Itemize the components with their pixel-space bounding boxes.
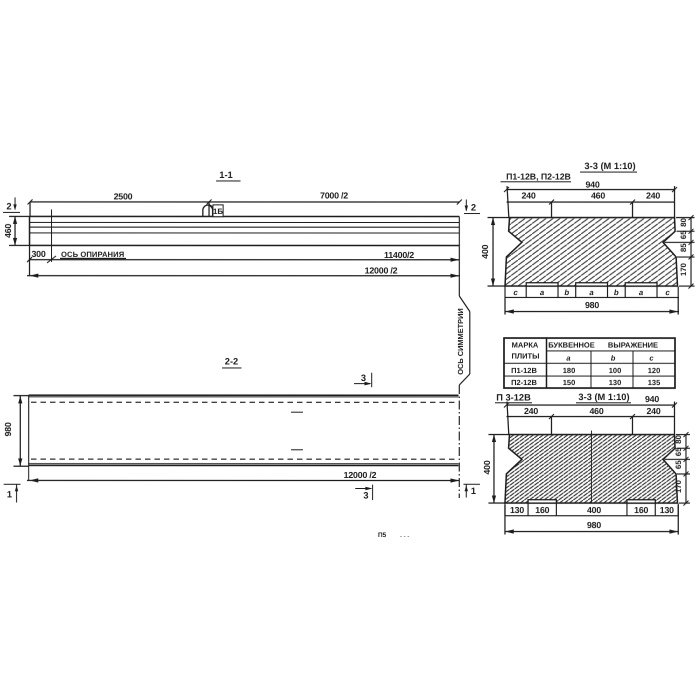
svg-text:130: 130 bbox=[660, 505, 674, 515]
svg-text:b: b bbox=[611, 354, 616, 363]
svg-text:ВЫРАЖЕНИЕ: ВЫРАЖЕНИЕ bbox=[608, 341, 658, 350]
svg-text:П 3-12В: П 3-12В bbox=[496, 393, 531, 403]
svg-text:100: 100 bbox=[609, 366, 622, 375]
svg-text:БУКВЕННОЕ: БУКВЕННОЕ bbox=[548, 341, 595, 350]
svg-text:2500: 2500 bbox=[114, 191, 133, 201]
svg-text:a: a bbox=[589, 288, 594, 297]
svg-text:3-3 (М 1:10): 3-3 (М 1:10) bbox=[584, 161, 635, 171]
svg-text:a: a bbox=[566, 354, 570, 363]
svg-text:80: 80 bbox=[674, 434, 683, 443]
svg-text:11400/2: 11400/2 bbox=[384, 250, 414, 260]
svg-text:65: 65 bbox=[679, 230, 688, 239]
svg-text:a: a bbox=[639, 288, 644, 297]
svg-text:1: 1 bbox=[7, 489, 12, 499]
svg-text:П5: П5 bbox=[378, 532, 387, 539]
svg-text:240: 240 bbox=[524, 406, 538, 416]
svg-text:c: c bbox=[665, 288, 670, 297]
svg-text:c: c bbox=[513, 288, 518, 297]
svg-text:170: 170 bbox=[674, 479, 683, 493]
svg-text:940: 940 bbox=[645, 394, 659, 404]
svg-text:460: 460 bbox=[3, 224, 13, 238]
svg-text:65: 65 bbox=[674, 460, 683, 469]
svg-text:300: 300 bbox=[31, 249, 45, 259]
svg-text:П1-12В: П1-12В bbox=[511, 366, 537, 375]
svg-text:980: 980 bbox=[3, 422, 13, 436]
svg-text:130: 130 bbox=[609, 378, 622, 387]
svg-text:85: 85 bbox=[679, 243, 688, 252]
svg-text:150: 150 bbox=[563, 378, 576, 387]
svg-text:1: 1 bbox=[471, 486, 476, 496]
svg-text:120: 120 bbox=[648, 366, 661, 375]
svg-text:ПЛИТЫ: ПЛИТЫ bbox=[512, 352, 540, 361]
svg-text:1Б: 1Б bbox=[213, 207, 223, 216]
svg-text:b: b bbox=[614, 288, 619, 297]
svg-text:- - -: - - - bbox=[400, 534, 409, 540]
svg-text:3-3 (М 1:10): 3-3 (М 1:10) bbox=[578, 392, 629, 402]
svg-text:170: 170 bbox=[679, 262, 688, 276]
svg-text:940: 940 bbox=[586, 180, 600, 190]
svg-text:240: 240 bbox=[522, 191, 536, 201]
svg-text:400: 400 bbox=[482, 460, 492, 474]
svg-text:80: 80 bbox=[679, 217, 688, 226]
svg-text:12000 /2: 12000 /2 bbox=[365, 266, 398, 276]
svg-text:460: 460 bbox=[591, 191, 605, 201]
svg-text:3: 3 bbox=[363, 491, 368, 501]
svg-text:П1-12В, П2-12В: П1-12В, П2-12В bbox=[506, 172, 571, 182]
svg-text:2: 2 bbox=[6, 201, 11, 211]
svg-text:a: a bbox=[540, 288, 545, 297]
svg-text:П2-12В: П2-12В bbox=[511, 378, 537, 387]
svg-text:ОСЬ СИММЕТРИИ: ОСЬ СИММЕТРИИ bbox=[456, 308, 465, 374]
svg-text:980: 980 bbox=[585, 300, 599, 310]
svg-text:7000 /2: 7000 /2 bbox=[320, 190, 348, 200]
svg-text:160: 160 bbox=[535, 505, 549, 515]
svg-text:400: 400 bbox=[480, 244, 490, 258]
svg-text:1-1: 1-1 bbox=[219, 170, 232, 180]
svg-text:2-2: 2-2 bbox=[225, 356, 238, 366]
svg-text:980: 980 bbox=[587, 520, 601, 530]
svg-text:460: 460 bbox=[589, 406, 603, 416]
svg-text:65: 65 bbox=[674, 447, 683, 456]
svg-text:160: 160 bbox=[634, 505, 648, 515]
svg-text:240: 240 bbox=[646, 191, 660, 201]
svg-text:3: 3 bbox=[361, 373, 366, 383]
svg-text:135: 135 bbox=[648, 378, 661, 387]
svg-text:МАРКА: МАРКА bbox=[512, 341, 539, 350]
svg-text:2: 2 bbox=[471, 203, 476, 213]
svg-text:b: b bbox=[564, 288, 569, 297]
svg-text:400: 400 bbox=[587, 505, 601, 515]
svg-text:ОСЬ ОПИРАНИЯ: ОСЬ ОПИРАНИЯ bbox=[61, 250, 124, 259]
svg-text:12000 /2: 12000 /2 bbox=[344, 470, 377, 480]
svg-text:130: 130 bbox=[510, 505, 524, 515]
svg-text:180: 180 bbox=[563, 366, 576, 375]
svg-text:240: 240 bbox=[646, 406, 660, 416]
